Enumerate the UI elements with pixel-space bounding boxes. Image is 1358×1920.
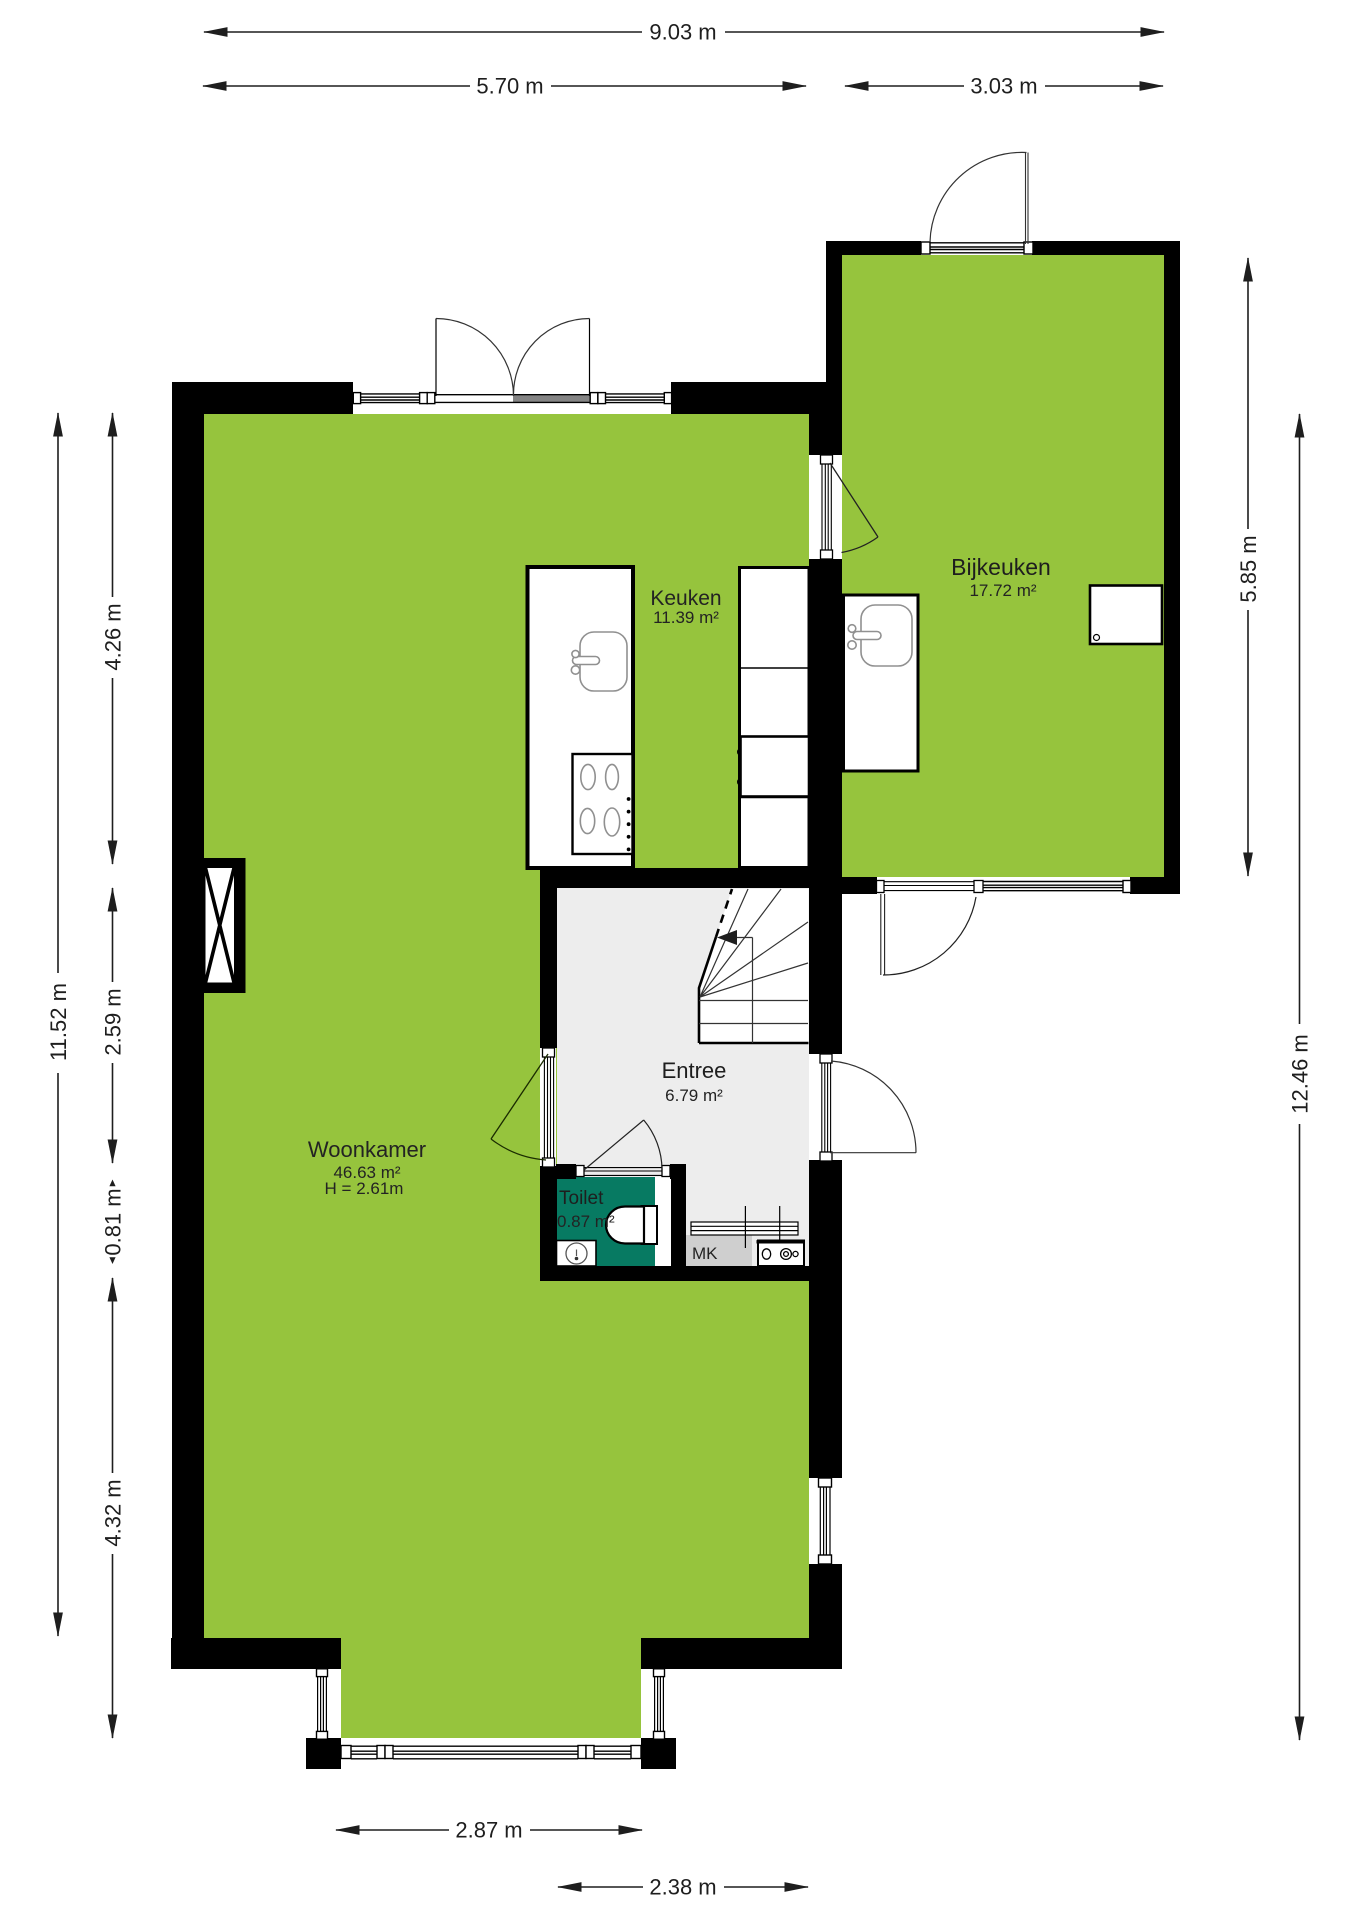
- svg-text:4.26 m: 4.26 m: [101, 603, 126, 670]
- svg-text:Toilet: Toilet: [559, 1188, 604, 1209]
- svg-text:Woonkamer: Woonkamer: [308, 1137, 426, 1162]
- svg-text:12.46 m: 12.46 m: [1288, 1034, 1313, 1114]
- svg-text:0.81 m: 0.81 m: [101, 1188, 126, 1255]
- svg-text:6.79 m²: 6.79 m²: [665, 1086, 723, 1105]
- svg-text:Bijkeuken: Bijkeuken: [951, 554, 1051, 580]
- svg-text:Entree: Entree: [662, 1058, 727, 1083]
- svg-text:4.32 m: 4.32 m: [101, 1479, 126, 1546]
- svg-text:3.03 m: 3.03 m: [970, 74, 1037, 99]
- svg-text:5.85 m: 5.85 m: [1236, 535, 1261, 602]
- svg-text:17.72 m²: 17.72 m²: [969, 581, 1036, 600]
- svg-text:2.59 m: 2.59 m: [101, 988, 126, 1055]
- svg-text:2.38 m: 2.38 m: [649, 1875, 716, 1900]
- svg-text:5.70 m: 5.70 m: [476, 74, 543, 99]
- svg-text:11.52 m: 11.52 m: [46, 983, 71, 1061]
- svg-text:0.87 m²: 0.87 m²: [557, 1212, 615, 1231]
- svg-text:11.39 m²: 11.39 m²: [653, 608, 719, 627]
- svg-text:H = 2.61m: H = 2.61m: [325, 1179, 404, 1198]
- svg-text:9.03 m: 9.03 m: [649, 20, 716, 45]
- svg-text:2.87 m: 2.87 m: [455, 1818, 522, 1843]
- svg-text:Keuken: Keuken: [650, 587, 721, 610]
- svg-text:MK: MK: [692, 1244, 718, 1263]
